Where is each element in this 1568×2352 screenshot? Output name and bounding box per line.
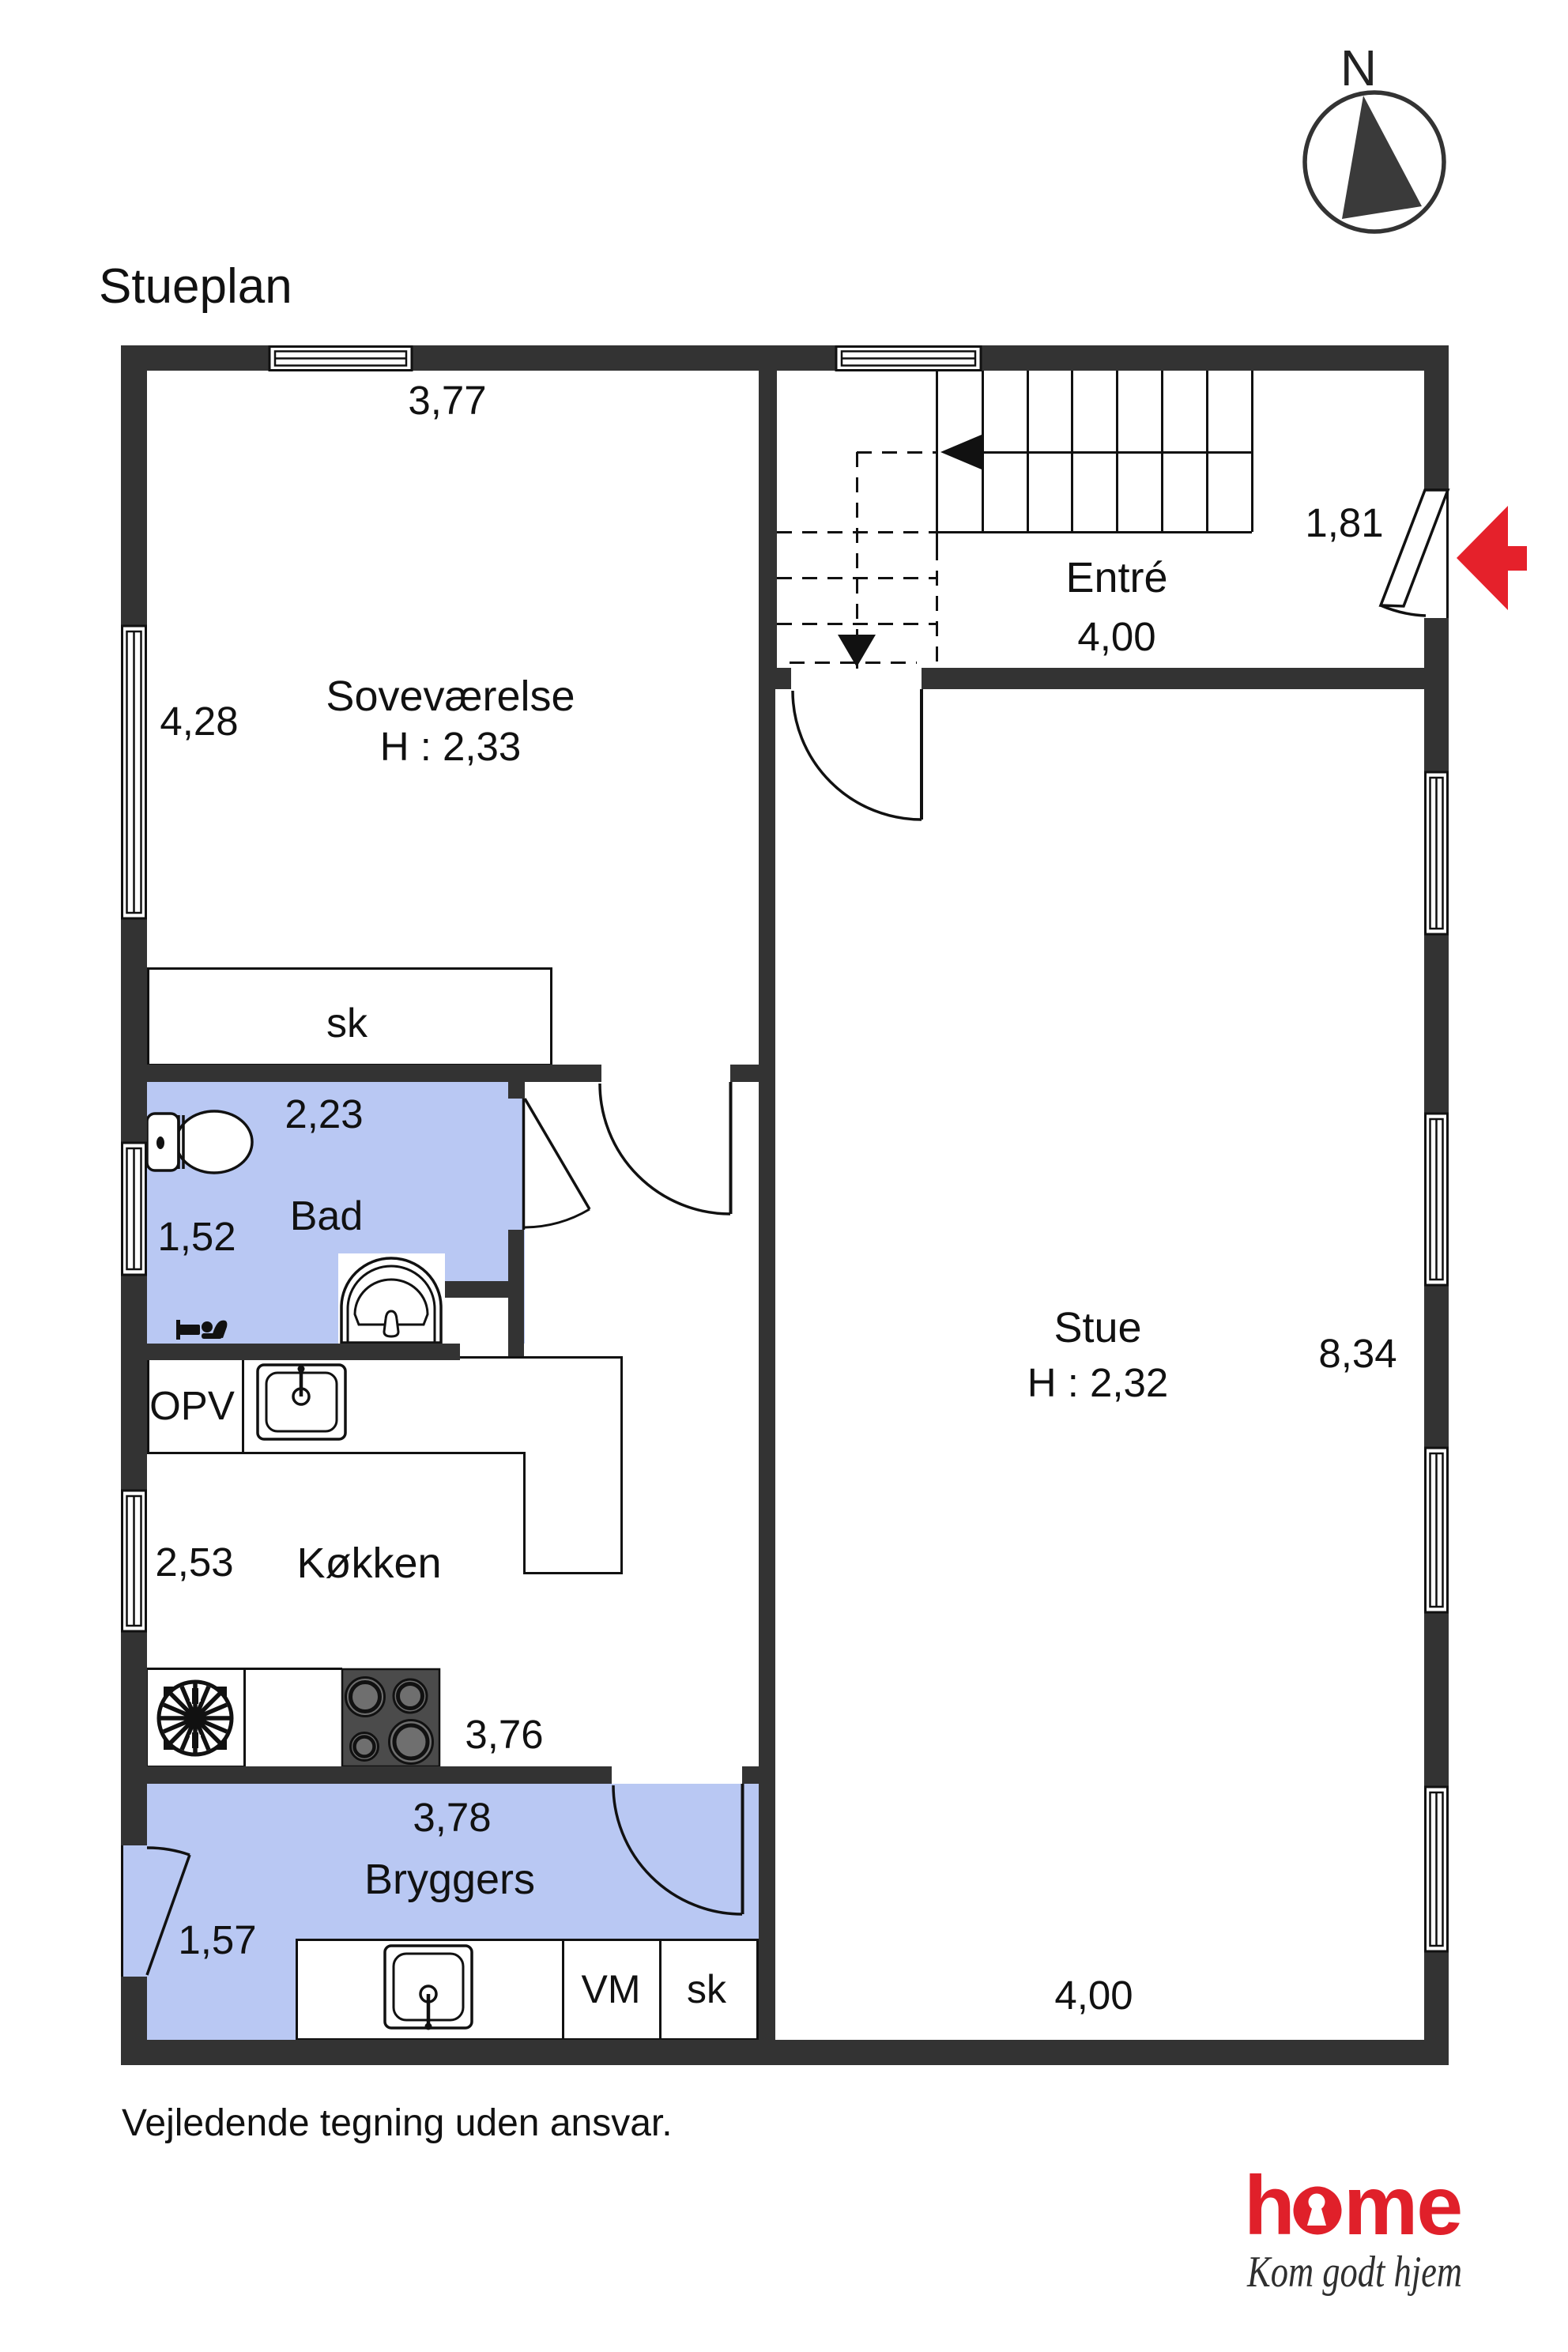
svg-text:3,78: 3,78	[413, 1795, 491, 1840]
svg-text:Kom godt hjem: Kom godt hjem	[1246, 2248, 1462, 2297]
svg-text:Køkken: Køkken	[296, 1540, 441, 1587]
svg-text:2,53: 2,53	[155, 1540, 233, 1585]
svg-text:Bad: Bad	[290, 1193, 364, 1239]
svg-text:VM: VM	[582, 1967, 641, 2011]
svg-text:sk: sk	[687, 1967, 727, 2011]
svg-text:4,00: 4,00	[1077, 614, 1155, 659]
svg-text:sk: sk	[326, 1001, 368, 1046]
svg-text:4,28: 4,28	[160, 699, 238, 744]
svg-text:3,77: 3,77	[408, 378, 486, 423]
svg-text:3,76: 3,76	[465, 1712, 543, 1757]
svg-text:Stueplan: Stueplan	[99, 259, 292, 314]
svg-text:h: h	[1244, 2159, 1294, 2252]
svg-text:Soveværelse: Soveværelse	[326, 673, 575, 720]
svg-text:1,57: 1,57	[178, 1917, 256, 1962]
svg-text:H : 2,33: H : 2,33	[380, 724, 522, 769]
svg-text:H : 2,32: H : 2,32	[1027, 1360, 1169, 1405]
svg-text:1,81: 1,81	[1305, 500, 1383, 545]
svg-text:8,34: 8,34	[1318, 1331, 1396, 1376]
svg-text:Stue: Stue	[1053, 1304, 1141, 1351]
svg-text:N: N	[1340, 40, 1377, 96]
svg-text:Vejledende tegning uden ansvar: Vejledende tegning uden ansvar.	[122, 2102, 673, 2144]
svg-text:me: me	[1344, 2159, 1461, 2252]
svg-text:Entré: Entré	[1065, 554, 1167, 601]
svg-text:Bryggers: Bryggers	[364, 1856, 535, 1903]
svg-text:1,52: 1,52	[157, 1214, 236, 1259]
svg-text:4,00: 4,00	[1054, 1973, 1133, 2018]
svg-text:2,23: 2,23	[285, 1091, 363, 1136]
svg-text:OPV: OPV	[149, 1383, 235, 1428]
